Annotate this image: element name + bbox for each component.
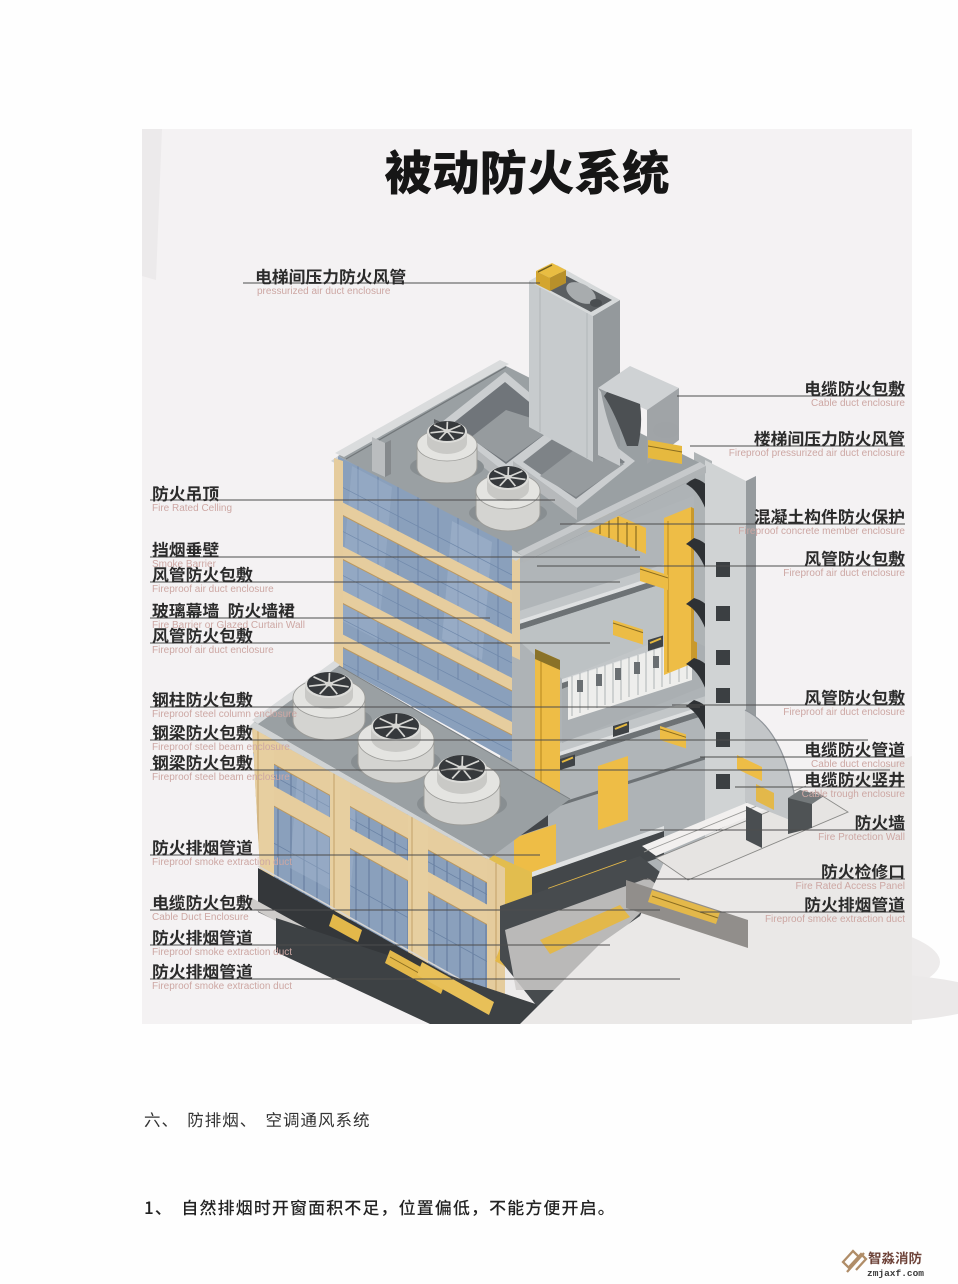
svg-text:Fireproof concrete member encl: Fireproof concrete member enclosure xyxy=(738,526,905,537)
svg-text:Fireproof smoke extraction duc: Fireproof smoke extraction duct xyxy=(765,914,905,925)
svg-text:Fire Rated Celling: Fire Rated Celling xyxy=(152,503,232,514)
svg-text:Fireproof smoke extraction duc: Fireproof smoke extraction duct xyxy=(152,981,292,992)
svg-text:Fireproof pressurized air duct: Fireproof pressurized air duct enclosure xyxy=(729,448,906,459)
svg-text:Fireproof air duct enclosure: Fireproof air duct enclosure xyxy=(783,568,905,579)
svg-text:Fireproof smoke extraction duc: Fireproof smoke extraction duct xyxy=(152,857,292,868)
svg-text:Fireproof steel column enclosu: Fireproof steel column enclosure xyxy=(152,709,298,720)
svg-text:Fireproof air duct enclosure: Fireproof air duct enclosure xyxy=(152,584,274,595)
svg-text:pressurized air duct enclosure: pressurized air duct enclosure xyxy=(257,286,391,297)
svg-text:Cable trough enclosure: Cable trough enclosure xyxy=(802,789,906,800)
svg-text:Cable Duct Enclosure: Cable Duct Enclosure xyxy=(152,912,249,923)
svg-text:Fireproof air duct enclosure: Fireproof air duct enclosure xyxy=(152,645,274,656)
svg-text:Fire Protection Wall: Fire Protection Wall xyxy=(818,832,905,843)
svg-text:Fire Rated Access Panel: Fire Rated Access Panel xyxy=(796,881,906,892)
svg-text:Fireproof steel beam enclosure: Fireproof steel beam enclosure xyxy=(152,742,290,753)
svg-text:Fireproof smoke extraction duc: Fireproof smoke extraction duct xyxy=(152,947,292,958)
svg-text:Fire Barrier or Glazed Curtain: Fire Barrier or Glazed Curtain Wall xyxy=(152,620,305,631)
svg-text:Cable duct enclosure: Cable duct enclosure xyxy=(811,759,905,770)
svg-text:Smoke Barrier: Smoke Barrier xyxy=(152,559,217,570)
svg-text:Fireproof air duct enclosure: Fireproof air duct enclosure xyxy=(783,707,905,718)
svg-text:Cable duct enclosure: Cable duct enclosure xyxy=(811,398,905,409)
svg-text:zmjaxf.com: zmjaxf.com xyxy=(867,1268,924,1279)
svg-text:Fireproof steel beam enclosure: Fireproof steel beam enclosure xyxy=(152,772,290,783)
